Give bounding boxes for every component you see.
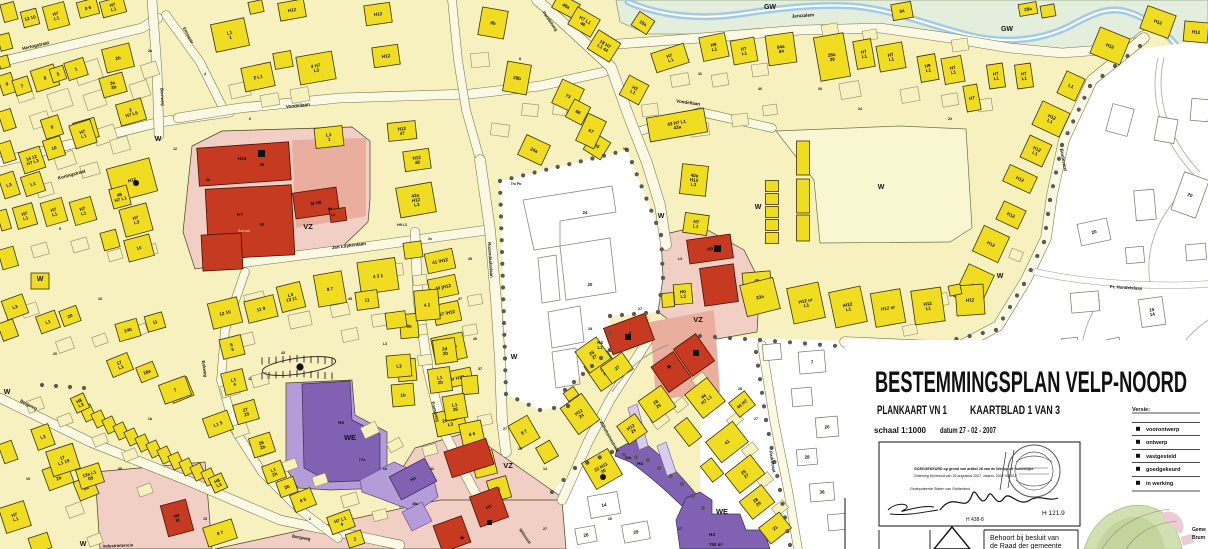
svg-text:GW: GW: [1001, 26, 1013, 33]
svg-text:29: 29: [518, 447, 522, 451]
svg-text:27: 27: [638, 307, 642, 311]
svg-text:20: 20: [53, 352, 57, 356]
svg-text:L3: L3: [383, 342, 387, 346]
svg-text:40: 40: [758, 87, 762, 91]
svg-text:★: ★: [666, 363, 672, 371]
svg-text:M: M: [260, 162, 264, 168]
svg-text:W: W: [755, 204, 762, 211]
svg-text:40: 40: [473, 337, 477, 341]
svg-text:20: 20: [824, 424, 830, 429]
svg-text:L3: L3: [691, 182, 697, 188]
svg-text:15: 15: [203, 517, 207, 521]
svg-text:W: W: [658, 213, 665, 220]
svg-text:4 2: 4 2: [424, 302, 431, 308]
svg-text:45: 45: [468, 257, 472, 261]
svg-text:27: 27: [503, 427, 507, 431]
svg-text:W: W: [4, 389, 11, 396]
svg-text:22: 22: [948, 117, 952, 121]
svg-text:H4: H4: [637, 461, 643, 466]
svg-text:Brum: Brum: [1192, 535, 1206, 541]
svg-text:47: 47: [399, 131, 405, 137]
svg-text:H10: H10: [238, 156, 247, 162]
svg-text:19: 19: [26, 477, 30, 481]
svg-text:Geme: Geme: [1192, 527, 1206, 533]
svg-text:W: W: [623, 147, 627, 151]
svg-text:H4: H4: [709, 532, 715, 538]
svg-text:WE: WE: [716, 507, 728, 516]
svg-text:47: 47: [458, 297, 462, 301]
svg-text:3b: 3b: [206, 178, 211, 182]
svg-text:2b: 2b: [437, 380, 443, 386]
svg-text:L3: L3: [331, 213, 335, 217]
svg-text:41: 41: [698, 72, 702, 76]
svg-text:Versie:: Versie:: [1132, 407, 1150, 413]
svg-text:schaal 1:1000: schaal 1:1000: [874, 426, 927, 435]
svg-text:26: 26: [608, 517, 612, 521]
svg-text:goedgekeurd: goedgekeurd: [1146, 467, 1181, 473]
svg-text:W: W: [997, 273, 1004, 280]
svg-text:H12: H12: [1192, 29, 1201, 35]
svg-text:28: 28: [588, 327, 592, 331]
svg-text:24: 24: [858, 107, 862, 111]
svg-text:H12: H12: [966, 297, 975, 303]
svg-text:L3: L3: [678, 257, 682, 261]
svg-text:H 438-8: H 438-8: [966, 517, 984, 523]
svg-text:W: W: [511, 354, 518, 361]
svg-text:Ordening bij besluit van 28 au: Ordening bij besluit van 28 augustus 200…: [914, 474, 1017, 478]
svg-text:8: 8: [519, 57, 521, 61]
svg-text:W: W: [80, 541, 87, 548]
svg-text:1b: 1b: [400, 392, 406, 397]
svg-text:L3: L3: [396, 363, 402, 368]
svg-text:27: 27: [754, 417, 758, 421]
svg-text:12: 12: [173, 147, 177, 151]
svg-text:05: 05: [118, 467, 122, 471]
svg-text:17: 17: [678, 527, 682, 531]
svg-text:H4: H4: [338, 420, 344, 425]
svg-text:School: School: [238, 229, 250, 233]
svg-text:KAARTBLAD 1 VAN 3: KAARTBLAD 1 VAN 3: [970, 403, 1060, 417]
svg-text:750 m²: 750 m²: [709, 542, 723, 547]
svg-text:6: 6: [249, 117, 251, 121]
svg-text:H9 L3: H9 L3: [397, 223, 407, 227]
svg-text:8b: 8b: [490, 20, 496, 26]
svg-text:W: W: [37, 276, 44, 283]
svg-text:4: 4: [204, 72, 206, 76]
svg-text:26: 26: [818, 87, 822, 91]
svg-text:45: 45: [348, 297, 352, 301]
svg-text:14: 14: [543, 467, 547, 471]
svg-text:datum 27 - 02 - 2007: datum 27 - 02 - 2007: [940, 426, 996, 435]
svg-text:in werking: in werking: [1146, 481, 1173, 487]
svg-text:45a: 45a: [412, 502, 419, 506]
svg-text:L3: L3: [680, 294, 686, 299]
svg-text:Gedeputeerde Staten van Gelder: Gedeputeerde Staten van Gelderland: [910, 487, 970, 491]
svg-text:37: 37: [478, 367, 482, 371]
svg-text:11: 11: [248, 377, 252, 381]
svg-text:voorontwerp: voorontwerp: [1146, 427, 1180, 433]
svg-text:VZ: VZ: [693, 315, 703, 324]
svg-text:H 121.9: H 121.9: [1042, 510, 1065, 517]
svg-text:16: 16: [98, 297, 102, 301]
svg-text:43: 43: [281, 351, 285, 355]
svg-text:BESTEMMINGSPLAN VELP-NOORD: BESTEMMINGSPLAN VELP-NOORD: [875, 366, 1187, 399]
svg-text:36: 36: [819, 489, 825, 494]
svg-text:H9: H9: [707, 246, 714, 252]
svg-text:20: 20: [588, 282, 593, 287]
svg-text:27: 27: [543, 527, 547, 531]
svg-text:28: 28: [738, 387, 742, 391]
svg-text:26b: 26b: [625, 456, 632, 460]
svg-text:Tro Pb: Tro Pb: [511, 182, 522, 186]
svg-text:vastgesteld: vastgesteld: [1146, 454, 1176, 460]
svg-text:PLANKAART VN 1: PLANKAART VN 1: [877, 403, 947, 417]
svg-text:2: 2: [309, 517, 311, 521]
svg-text:★: ★: [459, 534, 465, 542]
svg-text:W: W: [155, 136, 162, 143]
svg-text:M: M: [260, 222, 264, 228]
svg-text:42: 42: [430, 467, 434, 471]
svg-text:L1: L1: [597, 345, 603, 350]
svg-text:WE: WE: [344, 433, 356, 442]
svg-text:5: 5: [59, 227, 61, 231]
svg-text:77a: 77a: [359, 457, 366, 462]
svg-text:28: 28: [804, 454, 810, 459]
svg-text:VZ: VZ: [303, 222, 313, 231]
svg-text:2b: 2b: [442, 351, 448, 357]
svg-text:H9: H9: [328, 207, 333, 211]
svg-text:GW: GW: [764, 4, 776, 11]
svg-text:H7: H7: [237, 212, 243, 218]
svg-text:2x: 2x: [428, 237, 432, 241]
svg-text:24: 24: [583, 210, 588, 215]
svg-text:VZ: VZ: [503, 461, 513, 470]
svg-text:W: W: [878, 184, 885, 191]
svg-text:ontwerp: ontwerp: [1146, 440, 1168, 446]
